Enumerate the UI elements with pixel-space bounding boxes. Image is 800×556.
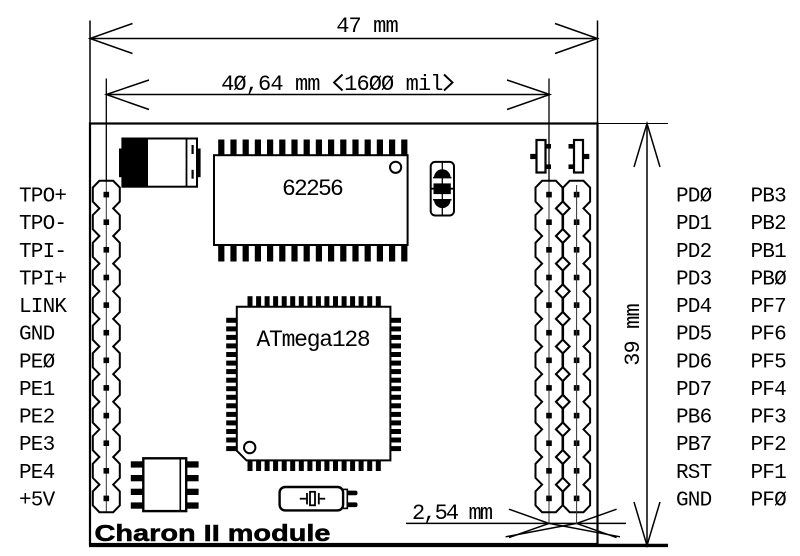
svg-text:PF1: PF1 xyxy=(751,462,787,485)
svg-text:PF4: PF4 xyxy=(751,379,787,402)
svg-text:TPO-: TPO- xyxy=(19,213,66,236)
svg-text:PEØ: PEØ xyxy=(19,351,55,374)
svg-text:PF7: PF7 xyxy=(751,296,786,319)
svg-text:PD4: PD4 xyxy=(676,296,712,319)
svg-text:PD5: PD5 xyxy=(676,324,712,347)
svg-text:PE2: PE2 xyxy=(19,407,55,430)
svg-text:PB6: PB6 xyxy=(676,407,712,430)
svg-text:PF3: PF3 xyxy=(751,407,787,430)
svg-text:ATmega128: ATmega128 xyxy=(257,327,370,353)
svg-text:TPI-: TPI- xyxy=(19,241,66,264)
svg-text:PD1: PD1 xyxy=(676,213,712,236)
svg-text:PB2: PB2 xyxy=(751,213,787,236)
svg-text:PFØ: PFØ xyxy=(751,489,787,512)
svg-text:PD6: PD6 xyxy=(676,351,712,374)
svg-text:PD3: PD3 xyxy=(676,269,712,292)
svg-text:PDØ: PDØ xyxy=(676,186,712,209)
svg-text:PF6: PF6 xyxy=(751,324,787,347)
svg-text:RST: RST xyxy=(676,462,712,485)
svg-text:4Ø,64 mm 16ØØ mil: 4Ø,64 mm 16ØØ mil xyxy=(221,72,455,97)
svg-text:47 mm: 47 mm xyxy=(336,14,398,39)
svg-text:PE4: PE4 xyxy=(19,462,55,485)
svg-text:GND: GND xyxy=(19,324,55,347)
svg-text:LINK: LINK xyxy=(19,296,67,319)
svg-text:PD2: PD2 xyxy=(676,241,712,264)
svg-text:PB3: PB3 xyxy=(751,186,787,209)
svg-text:PBØ: PBØ xyxy=(751,269,787,292)
svg-text:TPO+: TPO+ xyxy=(19,186,66,209)
svg-text:Charon II module: Charon II module xyxy=(95,520,331,546)
svg-text:TPI+: TPI+ xyxy=(19,269,66,292)
svg-text:+5V: +5V xyxy=(19,489,56,512)
svg-text:62256: 62256 xyxy=(282,176,343,202)
svg-text:PE3: PE3 xyxy=(19,434,55,457)
svg-text:PB1: PB1 xyxy=(751,241,787,264)
svg-text:PF2: PF2 xyxy=(751,434,787,457)
svg-text:PE1: PE1 xyxy=(19,379,55,402)
svg-text:39 mm: 39 mm xyxy=(621,304,646,366)
svg-text:PF5: PF5 xyxy=(751,351,787,374)
svg-text:PD7: PD7 xyxy=(676,379,711,402)
svg-text:2,54 mm: 2,54 mm xyxy=(412,501,493,526)
svg-text:GND: GND xyxy=(676,489,712,512)
svg-text:PB7: PB7 xyxy=(676,434,711,457)
